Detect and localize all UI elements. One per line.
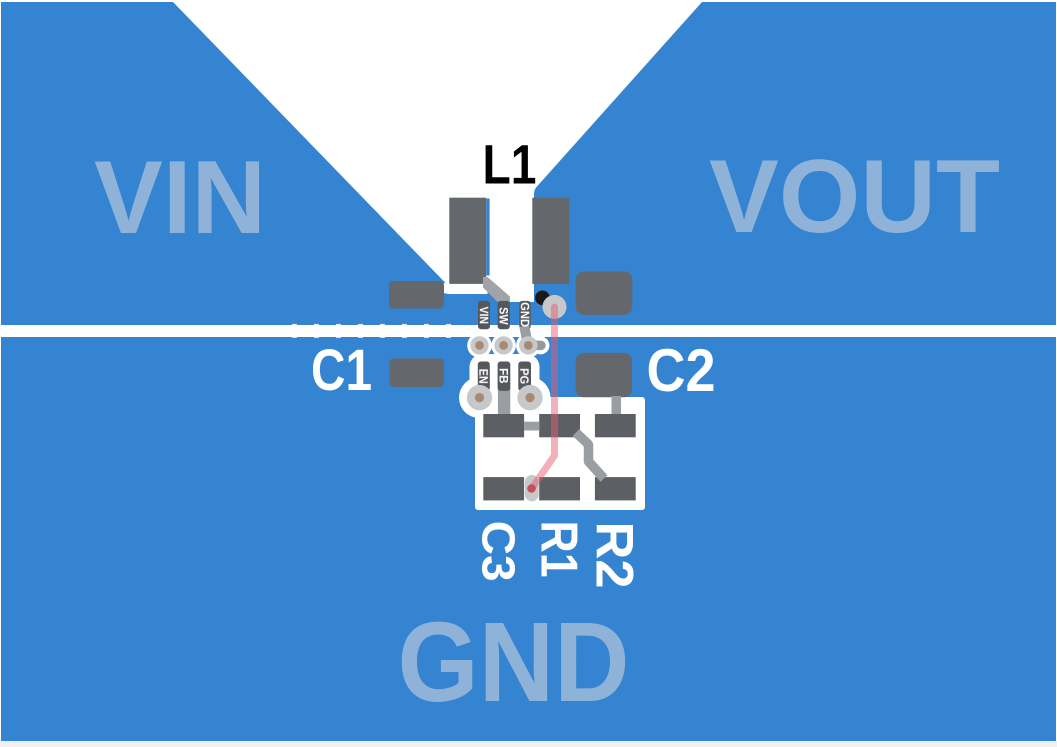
svg-text:R1: R1 [530, 521, 588, 578]
svg-text:VOUT: VOUT [709, 139, 1000, 255]
svg-text:GND: GND [518, 302, 532, 327]
svg-text:VIN: VIN [477, 307, 491, 325]
svg-text:R2: R2 [585, 522, 644, 589]
svg-text:PG: PG [517, 368, 531, 384]
svg-text:L1: L1 [483, 133, 537, 196]
svg-text:FB: FB [497, 368, 511, 384]
svg-text:SW: SW [497, 307, 511, 325]
svg-text:EN: EN [476, 369, 490, 384]
svg-text:C3: C3 [473, 521, 525, 582]
svg-text:GND: GND [398, 599, 630, 725]
svg-text:VIN: VIN [94, 140, 266, 256]
svg-text:C2: C2 [647, 337, 716, 404]
svg-text:C1: C1 [311, 338, 372, 403]
